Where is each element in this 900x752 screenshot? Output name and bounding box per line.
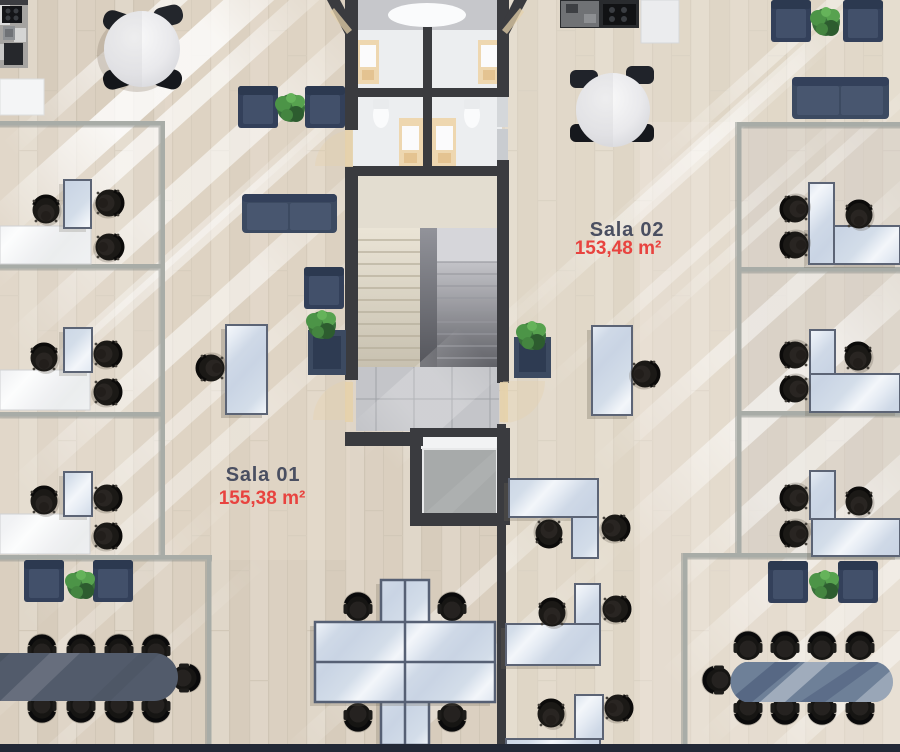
svg-text:153,48 m²: 153,48 m²: [575, 238, 662, 259]
svg-text:Sala 01: Sala 01: [226, 464, 301, 486]
svg-text:155,38 m²: 155,38 m²: [219, 488, 306, 509]
